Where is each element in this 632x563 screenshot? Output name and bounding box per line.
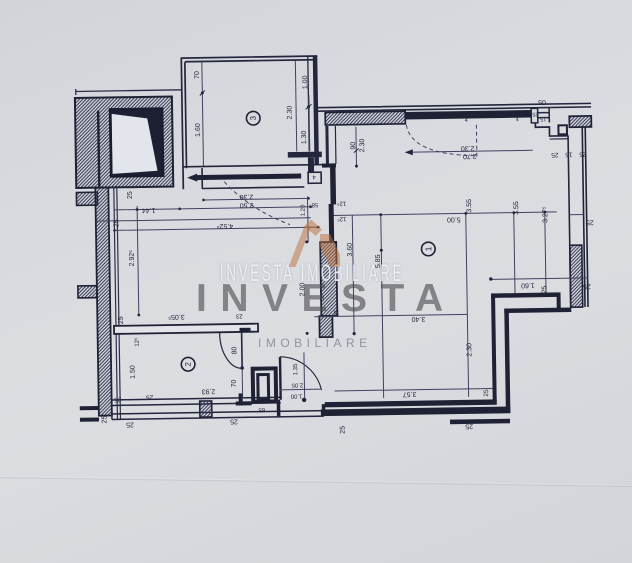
svg-text:15: 15 xyxy=(540,116,546,122)
svg-text:2.30: 2.30 xyxy=(287,106,294,120)
svg-text:25: 25 xyxy=(541,286,548,294)
svg-text:1.35: 1.35 xyxy=(293,363,299,375)
svg-text:25: 25 xyxy=(532,111,538,117)
svg-text:58⁵: 58⁵ xyxy=(308,201,318,208)
svg-text:25: 25 xyxy=(579,150,587,157)
svg-text:25: 25 xyxy=(483,389,490,397)
svg-text:25: 25 xyxy=(146,393,154,400)
svg-text:2.50: 2.50 xyxy=(240,201,254,208)
svg-text:25: 25 xyxy=(340,426,347,434)
svg-text:2.30: 2.30 xyxy=(359,139,366,153)
svg-text:25: 25 xyxy=(113,219,120,227)
svg-text:70: 70 xyxy=(194,71,201,79)
svg-text:12⁵: 12⁵ xyxy=(134,337,141,347)
svg-text:25: 25 xyxy=(101,416,108,424)
svg-text:2.30: 2.30 xyxy=(239,193,253,200)
svg-text:1: 1 xyxy=(423,246,433,251)
svg-text:25: 25 xyxy=(126,421,134,428)
svg-text:2.70: 2.70 xyxy=(463,152,477,159)
svg-text:25: 25 xyxy=(127,191,134,199)
svg-text:90: 90 xyxy=(350,142,357,150)
svg-text:1.00: 1.00 xyxy=(290,392,302,398)
svg-text:2.05: 2.05 xyxy=(291,381,303,387)
svg-text:80: 80 xyxy=(231,346,238,354)
svg-text:1.60: 1.60 xyxy=(521,281,535,288)
svg-text:1.00: 1.00 xyxy=(302,75,309,89)
svg-text:1.44: 1.44 xyxy=(142,206,156,213)
svg-text:2.92⁵: 2.92⁵ xyxy=(129,250,136,267)
svg-text:25: 25 xyxy=(230,417,238,424)
svg-text:25: 25 xyxy=(118,316,125,324)
svg-text:3.55: 3.55 xyxy=(466,199,473,213)
svg-text:25: 25 xyxy=(465,422,473,429)
svg-text:3.57: 3.57 xyxy=(403,390,417,397)
svg-text:2.30: 2.30 xyxy=(461,144,475,151)
svg-text:25: 25 xyxy=(114,396,122,403)
svg-text:2: 2 xyxy=(184,361,193,366)
svg-text:4: 4 xyxy=(465,118,468,124)
svg-text:25: 25 xyxy=(586,218,594,225)
svg-text:4: 4 xyxy=(312,173,316,179)
svg-text:3.27⁵: 3.27⁵ xyxy=(542,206,549,223)
svg-text:3.55: 3.55 xyxy=(513,201,520,215)
svg-text:2.30: 2.30 xyxy=(466,343,473,357)
svg-text:70: 70 xyxy=(231,379,238,387)
svg-text:4: 4 xyxy=(516,117,519,123)
svg-text:3.05⁵: 3.05⁵ xyxy=(168,313,185,320)
svg-text:5.00: 5.00 xyxy=(447,215,461,222)
svg-text:1.60: 1.60 xyxy=(195,123,202,137)
svg-text:15: 15 xyxy=(565,151,573,158)
svg-text:3: 3 xyxy=(249,115,258,120)
svg-text:12⁵: 12⁵ xyxy=(336,200,346,207)
svg-text:1.50: 1.50 xyxy=(130,365,137,379)
svg-text:65: 65 xyxy=(258,406,265,412)
svg-text:25: 25 xyxy=(583,282,591,289)
svg-text:2.93: 2.93 xyxy=(202,387,216,394)
svg-text:05: 05 xyxy=(538,98,546,105)
svg-text:4.52⁵: 4.52⁵ xyxy=(217,222,234,229)
svg-text:1.30: 1.30 xyxy=(301,130,308,144)
svg-text:25: 25 xyxy=(551,151,559,158)
